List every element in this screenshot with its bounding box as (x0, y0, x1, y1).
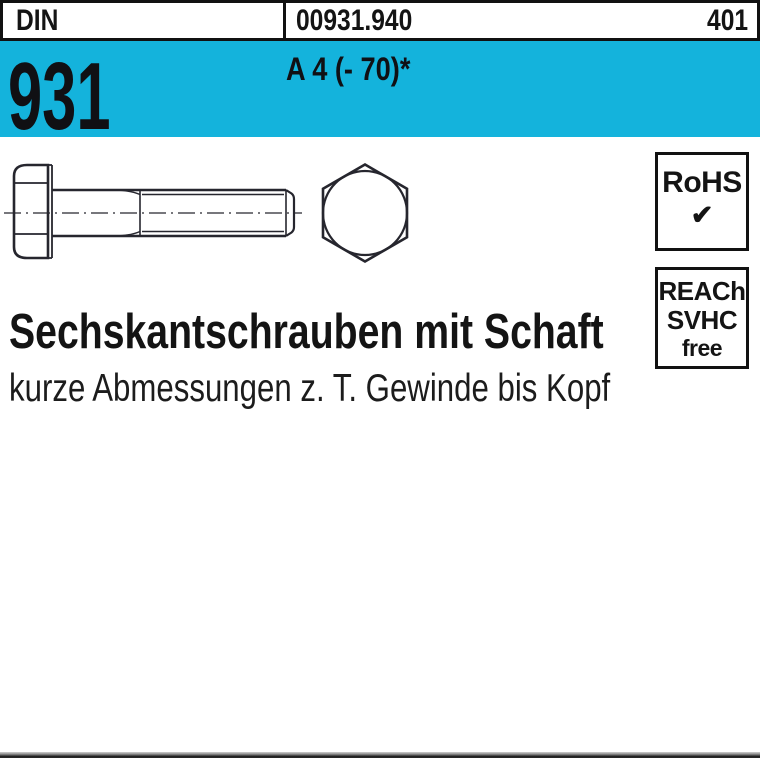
bolt-technical-drawing (0, 145, 470, 295)
bolt-side-view (4, 165, 302, 258)
product-title: Sechskantschrauben mit Schaft (9, 305, 604, 360)
bottom-divider-bar (0, 752, 760, 758)
din-number: 931 (8, 49, 111, 145)
page-number: 401 (707, 4, 748, 38)
rohs-label: RoHS (662, 167, 742, 199)
reach-line3: free (682, 336, 722, 361)
article-number: 00931.940 (296, 4, 412, 38)
hexagon-outline (323, 165, 407, 262)
reach-line2: SVHC (667, 306, 737, 335)
header-cell-din: DIN (3, 3, 286, 38)
check-icon: ✔ (691, 202, 714, 229)
reach-line1: REACh (658, 277, 745, 306)
hex-head-outline (14, 165, 48, 258)
product-subtitle: kurze Abmessungen z. T. Gewinde bis Kopf (9, 367, 610, 411)
rohs-badge: RoHS ✔ (655, 152, 749, 251)
din-label: DIN (16, 4, 58, 38)
catalog-header: DIN 00931.940 401 (0, 0, 760, 41)
material-grade: A 4 (- 70)* (286, 53, 410, 85)
bolt-front-view (323, 165, 407, 262)
header-cell-number: 00931.940 401 (286, 3, 757, 38)
head-chamfer-circle (323, 171, 407, 255)
hex-head-facets (14, 183, 48, 234)
reach-badge: REACh SVHC free (655, 267, 749, 369)
